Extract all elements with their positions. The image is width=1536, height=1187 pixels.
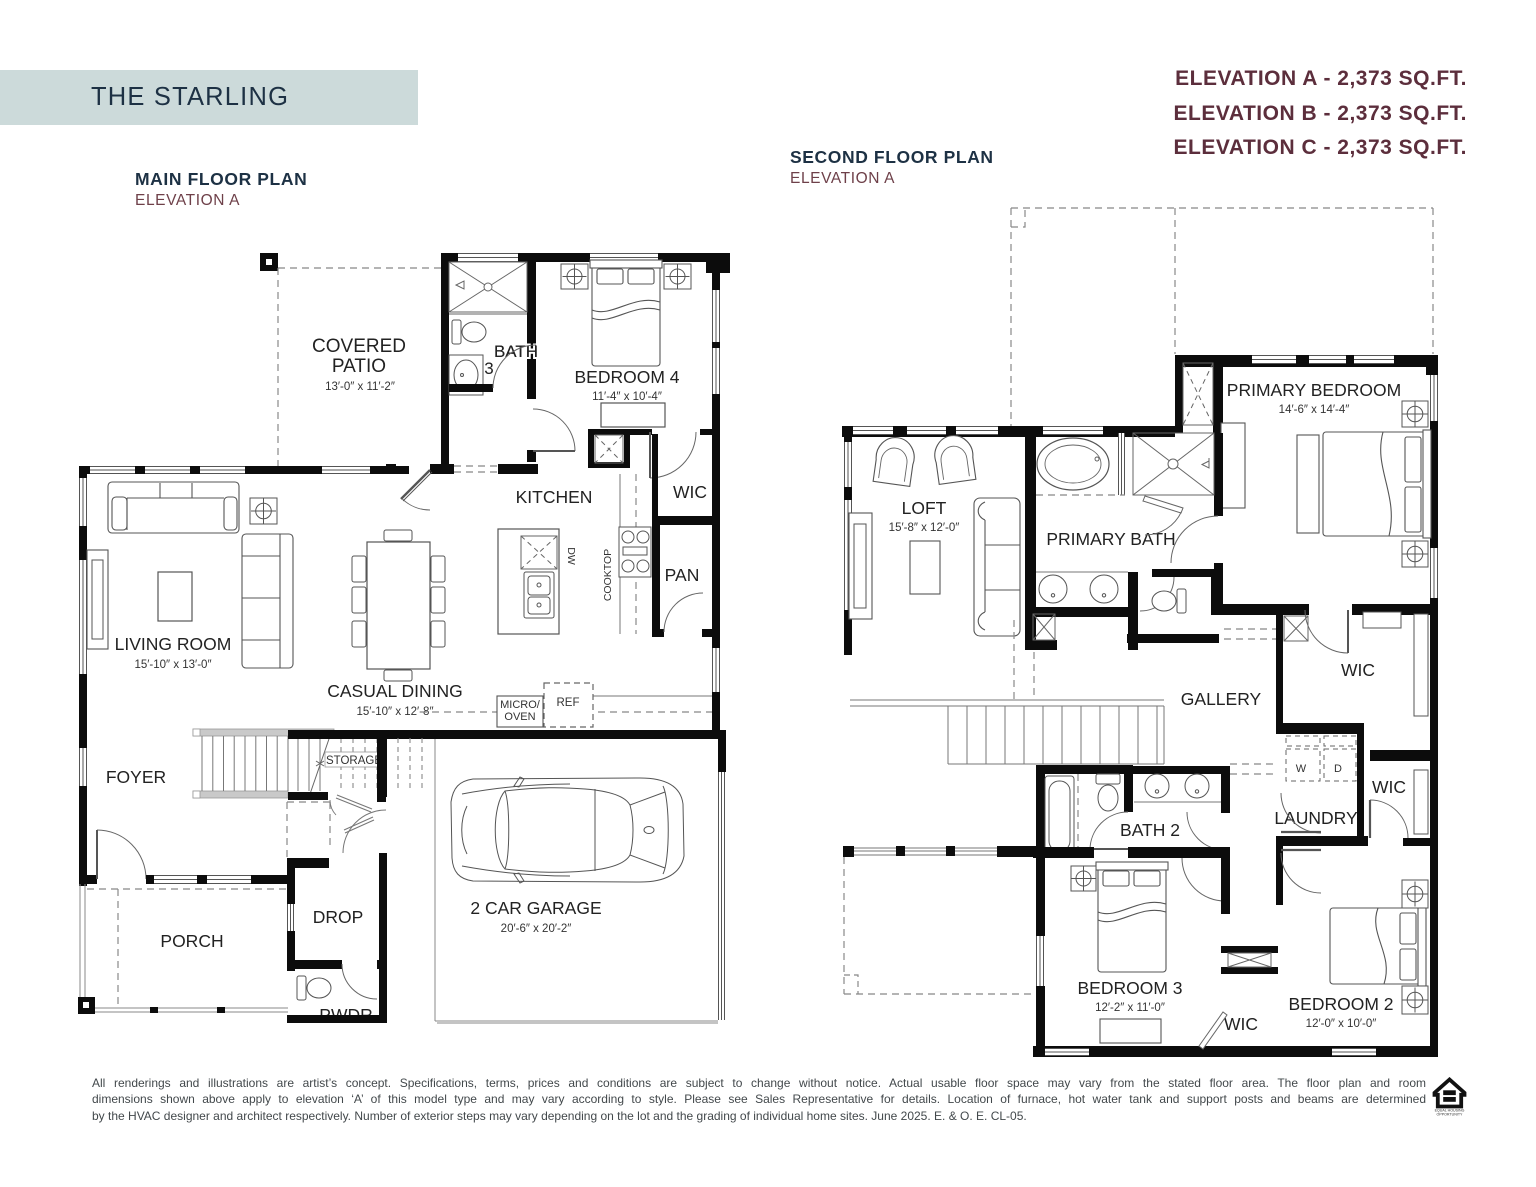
svg-text:REF: REF (557, 697, 580, 709)
svg-text:12′-2″ x 11′-0″: 12′-2″ x 11′-0″ (1095, 1002, 1165, 1014)
svg-text:20′-6″ x 20′-2″: 20′-6″ x 20′-2″ (501, 923, 572, 935)
svg-text:WIC: WIC (1224, 1014, 1258, 1034)
svg-text:DW: DW (565, 547, 577, 565)
svg-text:LIVING ROOM: LIVING ROOM (115, 634, 232, 654)
svg-text:WIC: WIC (1372, 777, 1406, 797)
svg-text:FOYER: FOYER (106, 767, 166, 787)
svg-text:MICRO/: MICRO/ (500, 699, 541, 711)
svg-text:BATH 2: BATH 2 (1120, 820, 1180, 840)
svg-text:W: W (1296, 763, 1307, 775)
svg-text:STORAGE: STORAGE (326, 755, 382, 767)
svg-text:3: 3 (484, 359, 493, 378)
svg-text:COOKTOP: COOKTOP (602, 549, 614, 601)
svg-text:LOFT: LOFT (902, 498, 947, 518)
svg-text:OPPORTUNITY: OPPORTUNITY (1437, 1112, 1463, 1116)
svg-text:DROP: DROP (313, 907, 364, 927)
svg-text:COVERED: COVERED (312, 336, 406, 357)
svg-text:PATIO: PATIO (332, 356, 386, 377)
svg-text:PRIMARY BATH: PRIMARY BATH (1046, 529, 1175, 549)
svg-text:12′-0″ x 10′-0″: 12′-0″ x 10′-0″ (1306, 1018, 1377, 1030)
svg-text:14′-6″ x 14′-4″: 14′-6″ x 14′-4″ (1279, 404, 1350, 416)
svg-text:BEDROOM 3: BEDROOM 3 (1077, 978, 1182, 998)
svg-text:BEDROOM 2: BEDROOM 2 (1288, 994, 1393, 1014)
svg-text:KITCHEN: KITCHEN (516, 487, 593, 507)
svg-text:D: D (1334, 763, 1342, 775)
svg-text:CASUAL DINING: CASUAL DINING (327, 681, 463, 701)
svg-text:BEDROOM 4: BEDROOM 4 (574, 367, 679, 387)
svg-text:15′-10″ x 13′-0″: 15′-10″ x 13′-0″ (134, 659, 211, 671)
svg-text:PORCH: PORCH (160, 931, 223, 951)
svg-text:GALLERY: GALLERY (1181, 689, 1262, 709)
svg-text:15′-8″ x 12′-0″: 15′-8″ x 12′-0″ (889, 522, 960, 534)
svg-text:LAUNDRY: LAUNDRY (1274, 808, 1358, 828)
svg-text:WIC: WIC (673, 482, 707, 502)
svg-text:11′-4″ x 10′-4″: 11′-4″ x 10′-4″ (592, 391, 662, 403)
svg-text:PRIMARY BEDROOM: PRIMARY BEDROOM (1227, 380, 1401, 400)
svg-text:13′-0″ x 11′-2″: 13′-0″ x 11′-2″ (325, 381, 395, 393)
svg-text:WIC: WIC (1341, 660, 1375, 680)
svg-text:2 CAR GARAGE: 2 CAR GARAGE (470, 898, 601, 918)
svg-text:OVEN: OVEN (504, 711, 535, 723)
svg-text:PAN: PAN (665, 565, 700, 585)
